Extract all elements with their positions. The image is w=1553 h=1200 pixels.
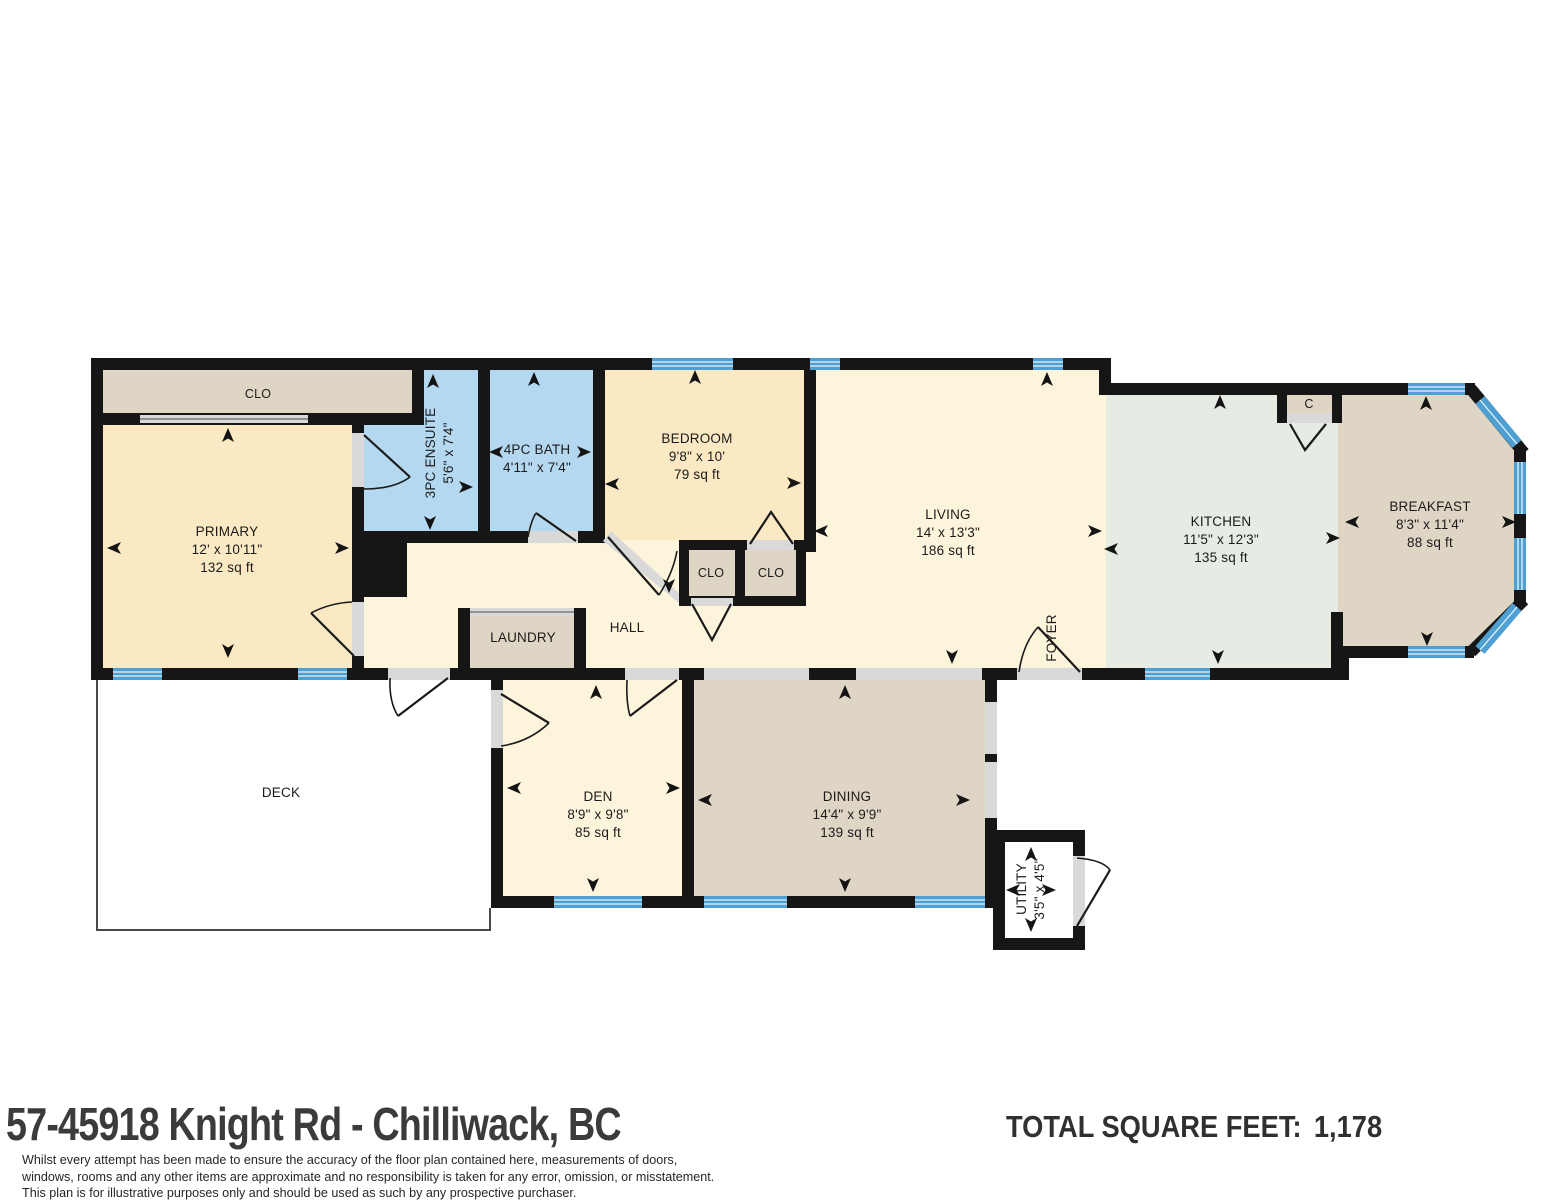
room-label-kitchen: KITCHEN 11'5" x 12'3" 135 sq ft [1183,513,1259,567]
room-area: 79 sq ft [661,466,732,484]
room-dims: 5'6" x 7'4" [440,408,458,499]
room-name: KITCHEN [1183,513,1259,531]
room-label-bath: 4PC BATH 4'11" x 7'4" [503,441,571,477]
room-label-closet-right: CLO [758,564,784,582]
room-label-utility: UTILITY 3'5" x 4'5" [1013,858,1049,919]
room-name: UTILITY [1013,858,1031,919]
total-square-feet: TOTAL SQUARE FEET:1,178 [1006,1109,1382,1145]
disclaimer-line: Whilst every attempt has been made to en… [22,1152,714,1169]
room-area: 85 sq ft [567,824,628,842]
room-dims: 14' x 13'3" [916,524,980,542]
floor-plan-graphic [0,0,1553,1200]
room-label-closet-left: CLO [698,564,724,582]
room-label-deck: DECK [262,784,300,802]
room-name: LAUNDRY [490,629,556,647]
page-title: 57-45918 Knight Rd - Chilliwack, BC [6,1097,621,1151]
room-label-foyer: FOYER [1043,614,1061,662]
room-dims: 3'5" x 4'5" [1031,858,1049,919]
room-name: 4PC BATH [503,441,571,459]
disclaimer-line: windows, rooms and any other items are a… [22,1169,714,1186]
floor-plan-page: CLO PRIMARY 12' x 10'11" 132 sq ft 3PC E… [0,0,1553,1200]
room-label-den: DEN 8'9" x 9'8" 85 sq ft [567,788,628,842]
room-dims: 12' x 10'11" [192,541,263,559]
room-label-ensuite: 3PC ENSUITE 5'6" x 7'4" [422,408,458,499]
room-name: CLO [698,564,724,582]
room-name: DINING [813,788,882,806]
room-dims: 8'3" x 11'4" [1389,516,1470,534]
room-dims: 14'4" x 9'9" [813,806,882,824]
room-name: C [1304,395,1313,413]
room-dims: 4'11" x 7'4" [503,459,571,477]
room-area: 139 sq ft [813,824,882,842]
room-name: DEN [567,788,628,806]
room-name: CLO [758,564,784,582]
room-name: CLO [245,385,271,403]
room-label-primary: PRIMARY 12' x 10'11" 132 sq ft [192,523,263,577]
disclaimer-text: Whilst every attempt has been made to en… [22,1152,714,1200]
room-name: 3PC ENSUITE [422,408,440,499]
room-area: 132 sq ft [192,559,263,577]
total-square-feet-value: 1,178 [1314,1109,1382,1144]
room-area: 88 sq ft [1389,534,1470,552]
room-label-breakfast: BREAKFAST 8'3" x 11'4" 88 sq ft [1389,498,1470,552]
room-name: DECK [262,784,300,802]
room-name: LIVING [916,506,980,524]
room-label-laundry: LAUNDRY [490,629,556,647]
room-label-primary-closet: CLO [245,385,271,403]
room-dims: 11'5" x 12'3" [1183,531,1259,549]
room-area: 135 sq ft [1183,549,1259,567]
room-label-dining: DINING 14'4" x 9'9" 139 sq ft [813,788,882,842]
room-label-living: LIVING 14' x 13'3" 186 sq ft [916,506,980,560]
room-label-c-closet: C [1304,395,1313,413]
room-label-hall: HALL [610,619,645,637]
room-name: PRIMARY [192,523,263,541]
room-label-bedroom: BEDROOM 9'8" x 10' 79 sq ft [661,430,732,484]
room-name: BREAKFAST [1389,498,1470,516]
room-dims: 8'9" x 9'8" [567,806,628,824]
room-area: 186 sq ft [916,542,980,560]
room-dims: 9'8" x 10' [661,448,732,466]
room-name: HALL [610,619,645,637]
disclaimer-line: This plan is for illustrative purposes o… [22,1185,714,1200]
room-name: FOYER [1043,614,1061,662]
room-name: BEDROOM [661,430,732,448]
total-square-feet-label: TOTAL SQUARE FEET: [1006,1109,1302,1144]
